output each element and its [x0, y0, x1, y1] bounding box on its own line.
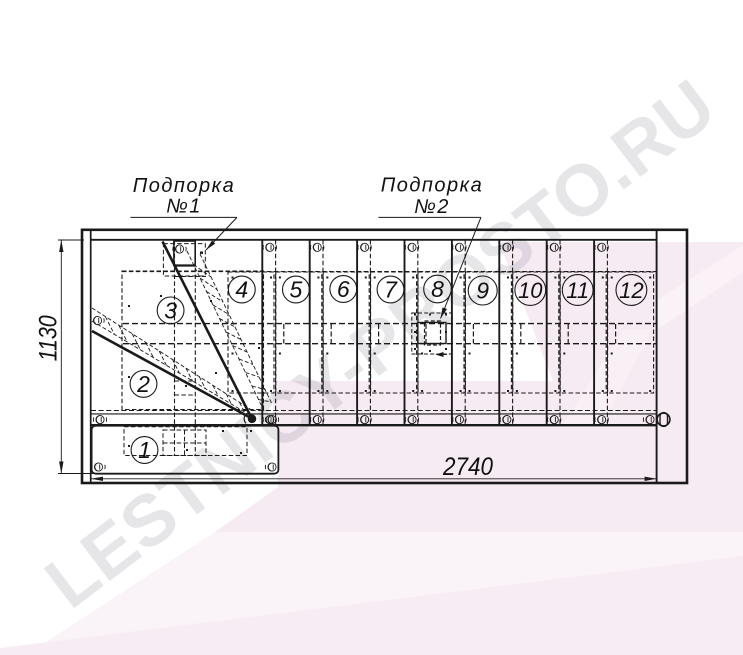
svg-text:№1: №1 [166, 196, 202, 218]
svg-text:10: 10 [518, 278, 543, 303]
svg-text:4: 4 [235, 277, 248, 303]
svg-text:9: 9 [476, 278, 489, 304]
svg-text:12: 12 [619, 278, 643, 303]
svg-text:3: 3 [164, 297, 177, 323]
svg-text:Подпорка: Подпорка [381, 175, 484, 197]
svg-text:7: 7 [384, 277, 398, 303]
svg-text:6: 6 [337, 276, 350, 302]
svg-text:1130: 1130 [35, 315, 63, 361]
svg-text:Подпорка: Подпорка [133, 175, 236, 197]
svg-text:8: 8 [431, 276, 444, 302]
svg-text:2: 2 [136, 371, 150, 397]
svg-text:11: 11 [566, 278, 589, 303]
svg-text:5: 5 [290, 277, 303, 303]
svg-text:2740: 2740 [442, 453, 493, 481]
svg-text:№2: №2 [414, 196, 450, 218]
svg-text:1: 1 [138, 437, 151, 463]
